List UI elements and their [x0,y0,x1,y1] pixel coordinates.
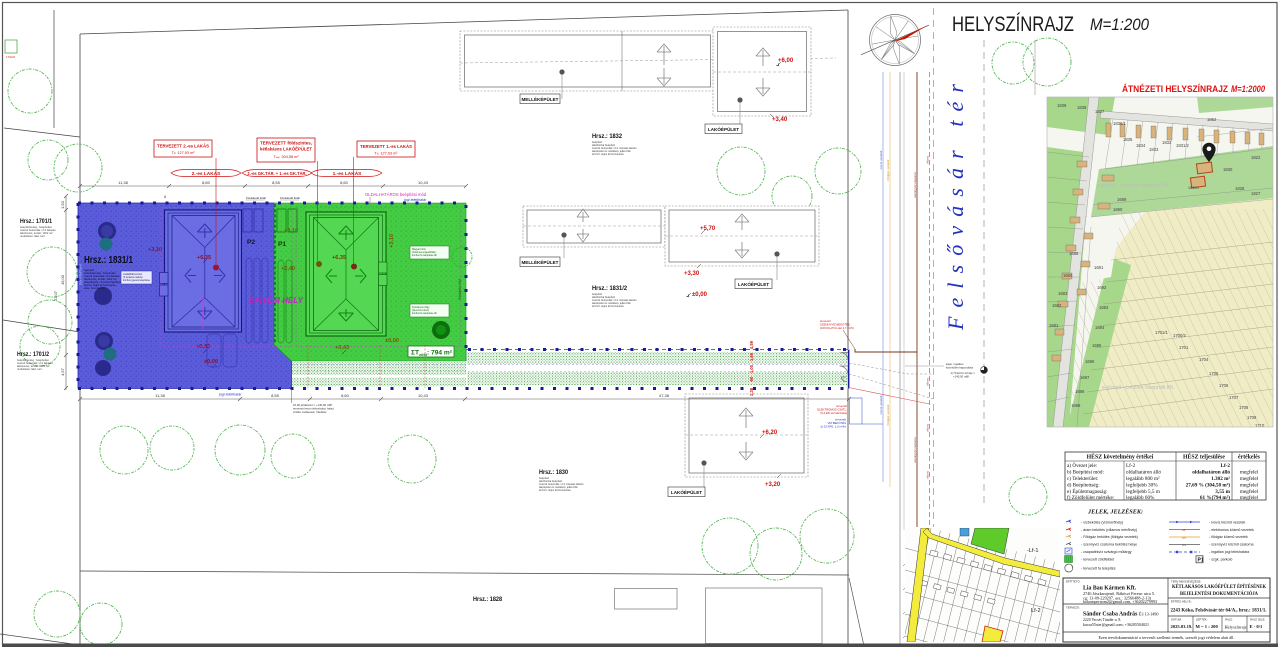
svg-text:villany: villany [926,377,930,386]
svg-text:1837: 1837 [1095,109,1105,114]
svg-text:61 %(794 m²): 61 %(794 m²) [1200,494,1230,501]
svg-text:oldalhatáros beépítés: oldalhatáros beépítés [201,295,205,330]
svg-text:közmű: teljes közművesítés: közmű: teljes közművesítés [592,304,624,308]
svg-text:- csapadékvíz szivárgó műtárgy: - csapadékvíz szivárgó műtárgy [1081,550,1132,554]
svg-text:ÉPÍTTETŐ:: ÉPÍTTETŐ: [1066,579,1081,584]
svg-text:+3,30: +3,30 [684,271,700,277]
svg-text:Tₙ: 127,93 m²: Tₙ: 127,93 m² [171,151,195,155]
svg-text:szennyvíz csatorna: szennyvíz csatorna [913,172,917,198]
svg-text:2220 Vecsés Tündér u. 8.: 2220 Vecsés Tündér u. 8. [1083,618,1121,622]
svg-text:- vízbekötés (vízmérőhely): - vízbekötés (vízmérőhely) [1081,521,1123,525]
svg-text:lombos fa telepítése db: lombos fa telepítése db [412,312,437,315]
svg-text:+3,20: +3,20 [765,482,781,488]
svg-text:- földgáz közmű vezeték: - földgáz közmű vezeték [1209,535,1248,539]
svg-text:1833: 1833 [1149,147,1159,152]
svg-text:Tₗₐₖ: 304,58 m²: Tₗₐₖ: 304,58 m² [273,155,299,159]
svg-text:e-közmű - Lechner Nonprofit Kf: e-közmű - Lechner Nonprofit Kft. [1102,385,1174,391]
svg-text:+6,20: +6,20 [762,430,778,436]
svg-text:11,38: 11,38 [118,180,128,185]
svg-text:1684: 1684 [1063,273,1073,278]
svg-text:b) Beépítési mód:: b) Beépítési mód: [1067,469,1104,476]
svg-text:+6,00: +6,00 [778,58,794,64]
svg-text:telep: tervezett ép.: telep: tervezett ép. [84,286,106,290]
svg-text:HÉSZ teljesülése: HÉSZ teljesülése [1183,453,1225,461]
svg-text:Hrsz.: 1831/1: Hrsz.: 1831/1 [84,254,133,266]
svg-text:1699: 1699 [1071,403,1081,408]
svg-text:villany: villany [926,470,930,479]
svg-text:legfeljebb 5,5 m: legfeljebb 5,5 m [1126,488,1160,495]
svg-text:+3,10: +3,10 [389,234,395,248]
svg-text:LAKÓÉPÜLET: LAKÓÉPÜLET [708,125,739,132]
svg-text:ΣTzöld: 794 m²: ΣTzöld: 794 m² [411,350,453,358]
svg-text:1695: 1695 [1092,343,1102,348]
svg-text:2243 Kóka, Felsővásár tér 64/A: 2243 Kóka, Felsővásár tér 64/A., hrsz.: … [1171,608,1268,614]
svg-text:e) Épületmagasság:: e) Épületmagasság: [1067,487,1108,495]
svg-text:1706: 1706 [1219,383,1229,388]
svg-text:- tervezett zöldfelület: - tervezett zöldfelület [1081,558,1114,562]
svg-text:Lf-2: Lf-2 [1220,463,1230,469]
svg-text:- tervezett fa telepítés: - tervezett fa telepítés [1081,567,1116,571]
svg-text:MELLÉKÉPÜLET: MELLÉKÉPÜLET [521,95,558,102]
svg-text:közműtlen kapcsolata: közműtlen kapcsolata [946,366,973,370]
svg-text:1852: 1852 [1207,117,1217,122]
svg-text:4,59: 4,59 [749,340,754,349]
svg-text:HÉSZ követelmény értékei: HÉSZ követelmény értékei [1087,453,1154,461]
svg-text:BEJELENTÉSI DOKUMENTÁCIÓJA: BEJELENTÉSI DOKUMENTÁCIÓJA [1180,589,1258,597]
svg-text:1822: 1822 [1251,155,1261,160]
svg-text:M=1:200: M=1:200 [1090,16,1150,34]
svg-text:- áram bekötés (villamos mérőh: - áram bekötés (villamos mérőhely) [1081,528,1137,532]
svg-text:8,60: 8,60 [340,180,349,185]
svg-text:ivóvíz vezeték: ivóvíz vezeték [879,150,883,169]
svg-text:közmű: teljes közművesítés: közmű: teljes közművesítés [592,152,624,156]
svg-text:47,38: 47,38 [659,393,670,398]
svg-text:1697: 1697 [1080,375,1090,380]
svg-text:1704: 1704 [1199,357,1209,362]
svg-text:rendeltetés: lakó, kert: rendeltetés: lakó, kert [20,234,45,238]
svg-text:Helyszínrajz: Helyszínrajz [1225,625,1247,630]
svg-text:1682: 1682 [1052,303,1062,308]
svg-text:2.-es LAKÁS: 2.-es LAKÁS [192,170,222,177]
svg-text:RAJZ JELE:: RAJZ JELE: [1250,618,1265,622]
svg-text:2.-es GK.TÁR. + 1.-es GK.TÁR.: 2.-es GK.TÁR. + 1.-es GK.TÁR. [247,171,306,176]
svg-text:MELLÉKÉPÜLET: MELLÉKÉPÜLET [521,258,558,265]
svg-text:Lia Bau Kármen Kft.: Lia Bau Kármen Kft. [1083,586,1137,592]
svg-text:e-közmű - Lechner Nonprofit Kf: e-közmű - Lechner Nonprofit Kft. [1097,183,1169,189]
svg-text:lombos gyecek telepítése: lombos gyecek telepítése [123,279,151,282]
svg-text:TERVEZETT 1.-es LAKÁS: TERVEZETT 1.-es LAKÁS [360,143,413,150]
svg-text:-Lf-1: -Lf-1 [1027,548,1039,554]
svg-text:oldalhatáron álló: oldalhatáron álló [1126,470,1161,476]
svg-text:11,38: 11,38 [155,393,165,398]
svg-text:LAKÓÉPÜLET: LAKÓÉPÜLET [671,488,702,495]
svg-text:ivóvíz vezeték: ivóvíz vezeték [879,395,883,414]
svg-text:1.302 m²: 1.302 m² [1211,476,1230,482]
svg-text:megfelel: megfelel [1240,482,1259,489]
svg-text:villany: villany [926,155,930,164]
svg-text:1839: 1839 [1057,103,1067,108]
svg-text:+6,35: +6,35 [197,255,211,261]
svg-text:Közlekedő kötár: Közlekedő kötár [280,196,300,200]
svg-text:LAKÓÉPÜLET: LAKÓÉPÜLET [738,280,769,287]
svg-text:1831/2: 1831/2 [1176,143,1189,148]
svg-text:P1: P1 [1198,558,1204,564]
svg-text:P2: P2 [247,239,255,246]
svg-text:1707: 1707 [1229,395,1239,400]
svg-text:- szgk. parkoló: - szgk. parkoló [1209,558,1232,562]
svg-text:1681: 1681 [1049,323,1059,328]
svg-text:27,69 % (304,58 m²): 27,69 % (304,58 m²) [1186,482,1231,489]
svg-text:- ivóvíz közmű vezeték: - ivóvíz közmű vezeték [1209,521,1246,525]
svg-text:16,00: 16,00 [60,274,65,285]
svg-text:1701/1: 1701/1 [1155,330,1168,335]
svg-text:1694: 1694 [1095,325,1105,330]
svg-text:Hrsz.: 1830: Hrsz.: 1830 [539,469,568,476]
svg-text:(160 KG-PVC-del 4,7 m³/h): (160 KG-PVC-del 4,7 m³/h) [820,326,854,330]
svg-text:legalább 60%: legalább 60% [1126,495,1155,501]
svg-text:lombos fa telepítése db: lombos fa telepítése db [412,254,437,257]
svg-text:ÉPÍTÉS HELYE:: ÉPÍTÉS HELYE: [1171,599,1192,604]
svg-text:TERVEZETT földszintes,: TERVEZETT földszintes, [260,141,313,147]
svg-text:TERVEZŐ:: TERVEZŐ: [1066,605,1080,610]
svg-text:1705: 1705 [1209,371,1219,376]
svg-text:+0,43: +0,43 [196,344,210,350]
svg-text:rendeltetés: lakó, kert: rendeltetés: lakó, kert [17,367,42,371]
svg-text:Tₙ: 127,93 m²: Tₙ: 127,93 m² [374,152,398,156]
svg-text:megfelel: megfelel [1240,469,1259,476]
svg-text:+3,10: +3,10 [148,247,162,253]
svg-text:+3,40: +3,40 [772,117,788,123]
svg-text:+140,00 mBf: +140,00 mBf [953,375,969,379]
svg-text:1692: 1692 [1097,285,1107,290]
svg-text:1702/2: 1702/2 [6,55,16,59]
svg-text:Hrsz.: 1701/2: Hrsz.: 1701/2 [17,352,50,358]
svg-text:60: 60 [749,376,754,381]
svg-text:RAJZ:: RAJZ: [1225,618,1233,622]
svg-text:1698: 1698 [1075,389,1085,394]
svg-text:ÁTNÉZETI HELYSZÍNRAJZ: ÁTNÉZETI HELYSZÍNRAJZ [1122,84,1228,94]
svg-text:1836/1: 1836/1 [1113,121,1126,126]
svg-text:szv: szv [1182,543,1187,547]
svg-text:1,00: 1,00 [749,364,754,373]
svg-text:1708: 1708 [1239,405,1249,410]
svg-text:földgáz vezeték: földgáz vezeték [886,159,890,180]
svg-text:- szennyvíz közmű csatorna: - szennyvíz közmű csatorna [1209,543,1254,547]
svg-text:8,55: 8,55 [272,180,281,185]
svg-text:Hrsz.: 1701/1: Hrsz.: 1701/1 [20,219,53,225]
svg-text:HELYSZÍNRAJZ: HELYSZÍNRAJZ [952,11,1074,36]
svg-text:legfeljebb 30%: legfeljebb 30% [1126,482,1158,489]
svg-text:megfelel: megfelel [1240,475,1259,482]
svg-text:10,43: 10,43 [418,393,429,398]
svg-text:4,57: 4,57 [60,367,65,376]
svg-text:oldalhatáron álló: oldalhatáron álló [1192,470,1230,476]
svg-text:közmű: teljes közművesítés: közmű: teljes közművesítés [539,488,571,492]
svg-text:22,07: 22,07 [53,290,58,301]
svg-text:1691: 1691 [1094,265,1104,270]
svg-text:1709: 1709 [1247,415,1257,420]
svg-text:2025.03.19.: 2025.03.19. [1171,624,1193,629]
svg-text:- ingatlan jogi telekhatára: - ingatlan jogi telekhatára [1209,550,1249,554]
svg-text:szennyvíz csatorna: szennyvíz csatorna [913,437,917,463]
svg-text:8,60: 8,60 [341,393,350,398]
svg-text:1701: 1701 [1179,345,1189,350]
svg-text:a) Övezet jele:: a) Övezet jele: [1067,462,1098,469]
svg-text:földgáz vezeték: földgáz vezeték [886,404,890,425]
svg-text:+6,35: +6,35 [332,255,346,261]
svg-text:TERV MEGNEVEZÉSE:: TERV MEGNEVEZÉSE: [1171,579,1201,584]
svg-text:KÉTLAKÁSOS LAKÓÉPÜLET ÉPÍTÉSÉN: KÉTLAKÁSOS LAKÓÉPÜLET ÉPÍTÉSÉNEK [1172,582,1267,590]
svg-text:1828: 1828 [1235,186,1245,191]
svg-text:1700/2: 1700/2 [1173,333,1186,338]
svg-text:M=1:2000: M=1:2000 [1231,84,1265,94]
svg-text:10,43: 10,43 [418,180,429,185]
svg-text:1831/1: 1831/1 [1188,186,1199,190]
svg-text:±0,00: ±0,00 [692,292,708,298]
svg-text:megfelel: megfelel [1240,488,1259,495]
svg-text:DÁTUM:: DÁTUM: [1171,618,1182,622]
svg-text:- elektromos közmű vezeték: - elektromos közmű vezeték [1209,528,1254,532]
svg-text:1,00: 1,00 [749,352,754,361]
svg-text:JELEK, JELZÉSEK:: JELEK, JELZÉSEK: [1087,508,1143,516]
svg-text:jogi telekhatár: jogi telekhatár [403,198,427,202]
svg-text:1696: 1696 [1085,359,1095,364]
svg-text:1.-es LAKÁS: 1.-es LAKÁS [333,170,363,177]
svg-text:1832: 1832 [1162,140,1172,145]
svg-text:Lf-2: Lf-2 [1031,608,1041,614]
svg-text:1835: 1835 [1123,137,1133,142]
svg-text:P1: P1 [278,241,286,248]
svg-text:OLDALHATÁROS beépítési mód: OLDALHATÁROS beépítési mód [365,192,427,197]
svg-text:TERVEZETT 2.-es LAKÁS: TERVEZETT 2.-es LAKÁS [157,143,210,150]
svg-text:1689: 1689 [1117,197,1127,202]
svg-text:f) Zöldfelület mértéke:: f) Zöldfelület mértéke: [1067,494,1115,501]
svg-text:1683: 1683 [1058,291,1068,296]
svg-text:Rövidebb föld: Rövidebb föld [458,279,462,300]
svg-text:1690: 1690 [1113,207,1123,212]
svg-text:1830: 1830 [1223,167,1233,172]
svg-text:c) Telekterület:: c) Telekterület: [1067,475,1099,482]
svg-text:M = 1 : 200: M = 1 : 200 [1196,624,1219,629]
svg-text:legalább 800 m²: legalább 800 m² [1126,476,1160,482]
svg-text:1,50: 1,50 [60,200,65,209]
svg-text:±0,00: ±0,00 [385,338,399,344]
svg-text:1827: 1827 [1251,191,1261,196]
svg-text:d) Beépítettség:: d) Beépítettség: [1067,482,1100,489]
svg-text:jogi telekhatár: jogi telekhatár [79,263,83,286]
svg-text:(5,4 kW-os hálózatra): (5,4 kW-os hálózatra) [820,411,847,415]
svg-text:Hrsz.: 1831/2: Hrsz.: 1831/2 [592,285,627,292]
svg-text:+0,43: +0,43 [335,345,349,351]
svg-text:8,60: 8,60 [202,180,211,185]
svg-text:E - 0/1: E - 0/1 [1250,624,1263,629]
svg-text:+2,40: +2,40 [281,266,295,272]
svg-text:+5,70: +5,70 [700,226,716,232]
svg-text:értékelés: értékelés [1238,455,1261,461]
svg-text:jogi telekhatár: jogi telekhatár [218,393,242,397]
svg-text:1834: 1834 [1136,143,1146,148]
svg-text:Lf-2: Lf-2 [1126,462,1136,469]
svg-text:- szennyvíz csatorna bekötés h: - szennyvíz csatorna bekötés helye [1081,543,1137,547]
svg-text:LÉPTÉK:: LÉPTÉK: [1196,617,1208,622]
svg-text:kacsa55ster@gmail.com; +36205: kacsa55ster@gmail.com; +36205504021 [1083,623,1149,627]
svg-text:1838: 1838 [1077,105,1087,110]
svg-text:gáz: gáz [1182,535,1187,539]
svg-text:(d 32 KPE, 1,5 m³/h): (d 32 KPE, 1,5 m³/h) [821,425,847,429]
svg-text:Hrsz.: 1832: Hrsz.: 1832 [592,133,622,140]
svg-text:megfelel: megfelel [1240,494,1259,501]
svg-text:1685: 1685 [1069,251,1079,256]
svg-text:vill: vill [1182,528,1186,532]
svg-text:- Földgáz bekötés (földgáz vez: - Földgáz bekötés (földgáz vezeték) [1081,535,1138,539]
svg-text:villany: villany [926,423,930,432]
svg-text:8,55: 8,55 [271,393,280,398]
svg-text:szülke melléesett, Vásártér: szülke melléesett, Vásártér [293,410,327,414]
svg-text:Közlekedő kötár: Közlekedő kötár [246,196,266,200]
svg-text:Hrsz.: 1828: Hrsz.: 1828 [473,596,502,603]
svg-text:ÉPÍTÉSI HELY: ÉPÍTÉSI HELY [249,295,304,305]
svg-text:1,38: 1,38 [749,387,754,396]
svg-text:1693: 1693 [1099,305,1109,310]
